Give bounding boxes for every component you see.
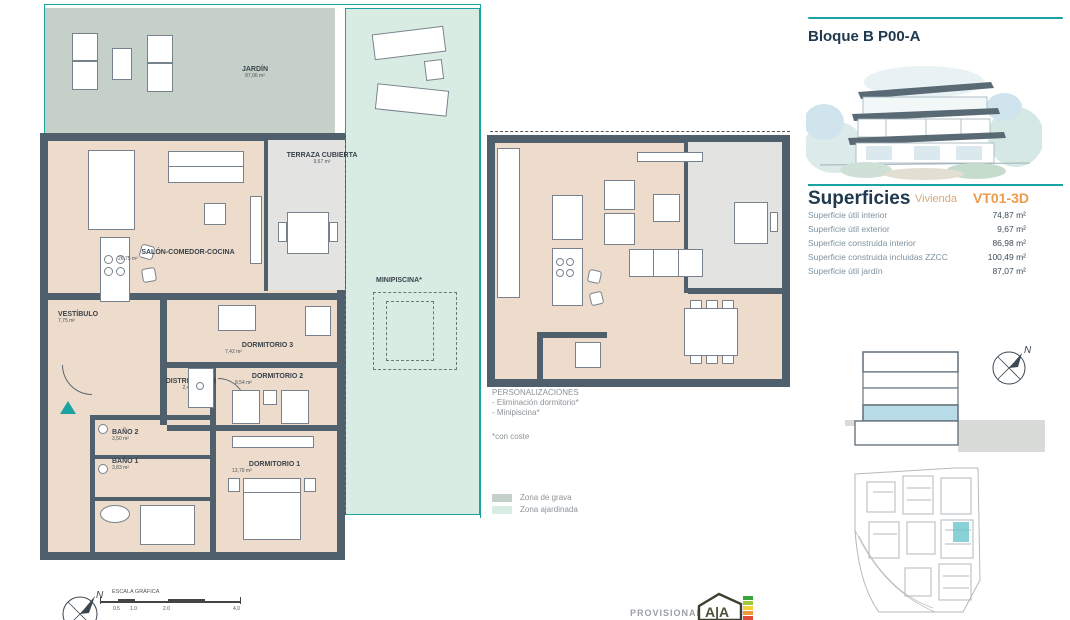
plan2-wall-terrace-bottom	[688, 288, 790, 294]
aia-cert-logo: A|A	[695, 590, 755, 620]
compass-icon: N	[988, 343, 1036, 389]
room-area: 8,54 m²	[235, 381, 320, 387]
coffee-table	[204, 203, 226, 225]
sofa	[168, 151, 244, 183]
garden-landscaped-zone	[345, 8, 480, 515]
sofa-line	[169, 166, 243, 167]
room-area: 87,06 m²	[215, 74, 295, 80]
plan2-shower	[575, 342, 601, 368]
scale-bar-segment	[118, 599, 135, 602]
room-area: 26,75 m²	[118, 257, 258, 263]
terrace-chair	[278, 222, 287, 242]
armchair	[604, 180, 635, 210]
room-area: 3,50 m²	[112, 437, 138, 443]
block-title: Bloque B P00-A	[808, 28, 921, 45]
hob-burner	[566, 258, 574, 266]
hob-burner	[566, 269, 574, 277]
room-area: 7,42 m²	[225, 350, 310, 356]
terrace-table	[287, 212, 329, 254]
bed-double	[243, 478, 301, 540]
kitchen-counter	[88, 150, 135, 230]
room-area: 7,75 m²	[58, 319, 98, 325]
superficies-label: Superficie útil jardín	[808, 266, 883, 276]
hob-burner	[104, 255, 113, 264]
wall-salon-terraza	[264, 141, 268, 291]
room-label-jardin: JARDÍN 87,06 m²	[215, 66, 295, 80]
unit-code: VT01-3D	[973, 190, 1029, 206]
scale-tick-label: 1.0	[130, 606, 137, 612]
shower	[140, 505, 195, 545]
superficies-value: 9,67 m²	[997, 224, 1026, 234]
nightstand	[263, 390, 277, 405]
room-label-dormitorio3: DORMITORIO 3 7,42 m²	[225, 342, 310, 356]
personalizaciones-item: - Eliminación dormitorio*	[492, 398, 579, 408]
scale-tick	[240, 597, 241, 604]
side-table	[112, 48, 132, 80]
dining-chair	[722, 355, 734, 364]
dining-chair	[690, 300, 702, 309]
room-area: 3,83 m²	[112, 466, 138, 472]
superficies-label: Superficie útil interior	[808, 210, 887, 220]
toilet	[100, 505, 130, 523]
superficies-row: Superficie construida interior 86,98 m²	[808, 238, 1026, 252]
lounger-divider	[73, 60, 97, 62]
floorplan-sheet: JARDÍN 87,06 m² MINIPISCINA* TERRAZA CUB…	[0, 0, 1070, 620]
personalizaciones-footnote: *con coste	[492, 432, 529, 442]
wall-banos-top	[90, 415, 210, 420]
room-label-salon: SALÓN-COMEDOR-COCINA 26,75 m²	[118, 249, 258, 263]
sofa-line	[678, 250, 679, 276]
site-plan-unit-highlight	[953, 522, 969, 542]
lounger-divider	[148, 62, 172, 64]
provisional-label: PROVISIONAL	[630, 608, 703, 618]
scale-tick-label: 4.0	[233, 606, 240, 612]
superficies-value: 87,07 m²	[992, 266, 1026, 276]
nightstand	[304, 478, 316, 492]
washbasin	[98, 464, 108, 474]
plan2-bath-wall-left	[537, 332, 543, 387]
tall-cabinets	[497, 148, 520, 298]
superficies-value: 74,87 m²	[992, 210, 1026, 220]
personalizaciones-block: PERSONALIZACIONES - Eliminación dormitor…	[492, 388, 579, 418]
wardrobe	[305, 306, 331, 336]
scale-tick-label: 2.0	[163, 606, 170, 612]
superficies-row: Superficie construida incluidas ZZCC 100…	[808, 252, 1026, 266]
room-name: TERRAZA CUBIERTA	[287, 152, 358, 159]
room-label-dormitorio2: DORMITORIO 2 8,54 m²	[235, 373, 320, 387]
hob-burner	[556, 258, 564, 266]
superficies-value: 100,49 m²	[988, 252, 1026, 262]
legend-swatch-grava	[492, 494, 512, 502]
legend-label: Zona de grava	[520, 493, 572, 502]
legend-row-ajardinada: Zona ajardinada	[492, 506, 642, 516]
terrace-table	[734, 202, 768, 244]
plan2-bath-wall	[537, 332, 607, 338]
legend-row-grava: Zona de grava	[492, 494, 642, 504]
dining-chair	[706, 300, 718, 309]
wall-vestibulo-right	[160, 300, 167, 425]
room-label-terraza: TERRAZA CUBIERTA 9,67 m²	[278, 152, 366, 166]
terrace-chair	[770, 212, 778, 232]
room-label-dormitorio1: DORMITORIO 1 13,79 m²	[232, 461, 317, 475]
nightstand	[228, 478, 240, 492]
bed-single	[218, 305, 256, 331]
sofa	[629, 249, 703, 277]
superficies-row: Superficie útil interior 74,87 m²	[808, 210, 1026, 224]
entrance-arrow	[60, 401, 76, 414]
building-render	[806, 52, 1042, 184]
terrace-chair	[329, 222, 338, 242]
stool	[587, 269, 602, 284]
scale-tick-label: 0.5	[113, 606, 120, 612]
room-label-vestibulo: VESTÍBULO 7,75 m²	[58, 311, 98, 325]
room-name: MINIPISCINA*	[376, 277, 422, 284]
dining-chair	[722, 300, 734, 309]
personalizaciones-item: - Minipiscina*	[492, 408, 579, 418]
scale-bar-title: ESCALA GRÁFICA	[112, 589, 159, 595]
wall-banos-left	[90, 415, 95, 552]
room-name: SALÓN-COMEDOR-COCINA	[141, 249, 234, 256]
bed-single	[281, 390, 309, 424]
room-name: DORMITORIO 2	[252, 373, 303, 380]
compass-north-label: N	[1024, 345, 1032, 356]
wardrobe	[232, 436, 314, 448]
dining-table	[684, 308, 738, 356]
landscaped-dashed-edge	[345, 135, 346, 515]
coffee-table	[653, 194, 680, 222]
superficies-row: Superficie útil jardín 87,07 m²	[808, 266, 1026, 280]
scale-tick	[100, 597, 101, 604]
room-area: 13,79 m²	[232, 469, 317, 475]
panel-top-rule	[808, 17, 1063, 19]
superficies-label: Superficie construida interior	[808, 238, 916, 248]
room-area: 9,67 m²	[278, 160, 366, 166]
superficies-heading: Superficies	[808, 188, 910, 210]
hob-burner	[556, 269, 564, 277]
kitchen-table	[552, 195, 583, 240]
wall-bano2-bano1	[92, 455, 210, 459]
hob-burner	[104, 267, 113, 276]
sofa-line	[653, 250, 654, 276]
minipiscina-inner	[386, 301, 434, 361]
room-label-bano1: BAÑO 1 3,83 m²	[112, 458, 138, 472]
garden-boundary-top	[45, 4, 480, 5]
superficies-label: Superficie útil exterior	[808, 224, 890, 234]
superficies-label: Superficie construida incluidas ZZCC	[808, 252, 948, 262]
side-table	[424, 59, 444, 81]
room-name: JARDÍN	[242, 66, 268, 73]
dining-chair	[706, 355, 718, 364]
stool	[141, 267, 157, 283]
garden-boundary-right	[480, 4, 481, 518]
wall-bano1-bottom	[92, 497, 210, 501]
plan2-dashed-top	[490, 131, 790, 132]
personalizaciones-title: PERSONALIZACIONES	[492, 388, 579, 398]
washbasin	[98, 424, 108, 434]
room-label-bano2: BAÑO 2 3,50 m²	[112, 429, 138, 443]
plan-compass-icon: N	[52, 588, 112, 620]
armchair	[604, 213, 635, 245]
bed-line	[244, 492, 300, 493]
panel-mid-rule	[808, 184, 1063, 186]
room-name: VESTÍBULO	[58, 311, 98, 318]
room-label-minipiscina: MINIPISCINA*	[376, 277, 422, 285]
superficies-value: 86,98 m²	[992, 238, 1026, 248]
room-name: DORMITORIO 3	[242, 342, 293, 349]
superficies-row: Superficie útil exterior 9,67 m²	[808, 224, 1026, 238]
scale-bar-segment	[168, 599, 205, 602]
room-name: DORMITORIO 1	[249, 461, 300, 468]
legend-label: Zona ajardinada	[520, 505, 578, 514]
wall-salon-bottom	[48, 293, 337, 300]
tv-unit	[637, 152, 703, 162]
wall-dorm2-dorm1	[167, 425, 337, 431]
aia-logo-text: A|A	[705, 604, 729, 620]
room-name: BAÑO 2	[112, 429, 138, 436]
legend-swatch-ajardinada	[492, 506, 512, 514]
site-plan	[845, 460, 993, 620]
room-name: BAÑO 1	[112, 458, 138, 465]
kitchen-island	[552, 248, 583, 306]
superficies-subheading: Vivienda	[915, 193, 957, 205]
washbasin	[196, 382, 204, 390]
hob-burner	[116, 267, 125, 276]
bed-single	[232, 390, 260, 424]
dining-chair	[690, 355, 702, 364]
